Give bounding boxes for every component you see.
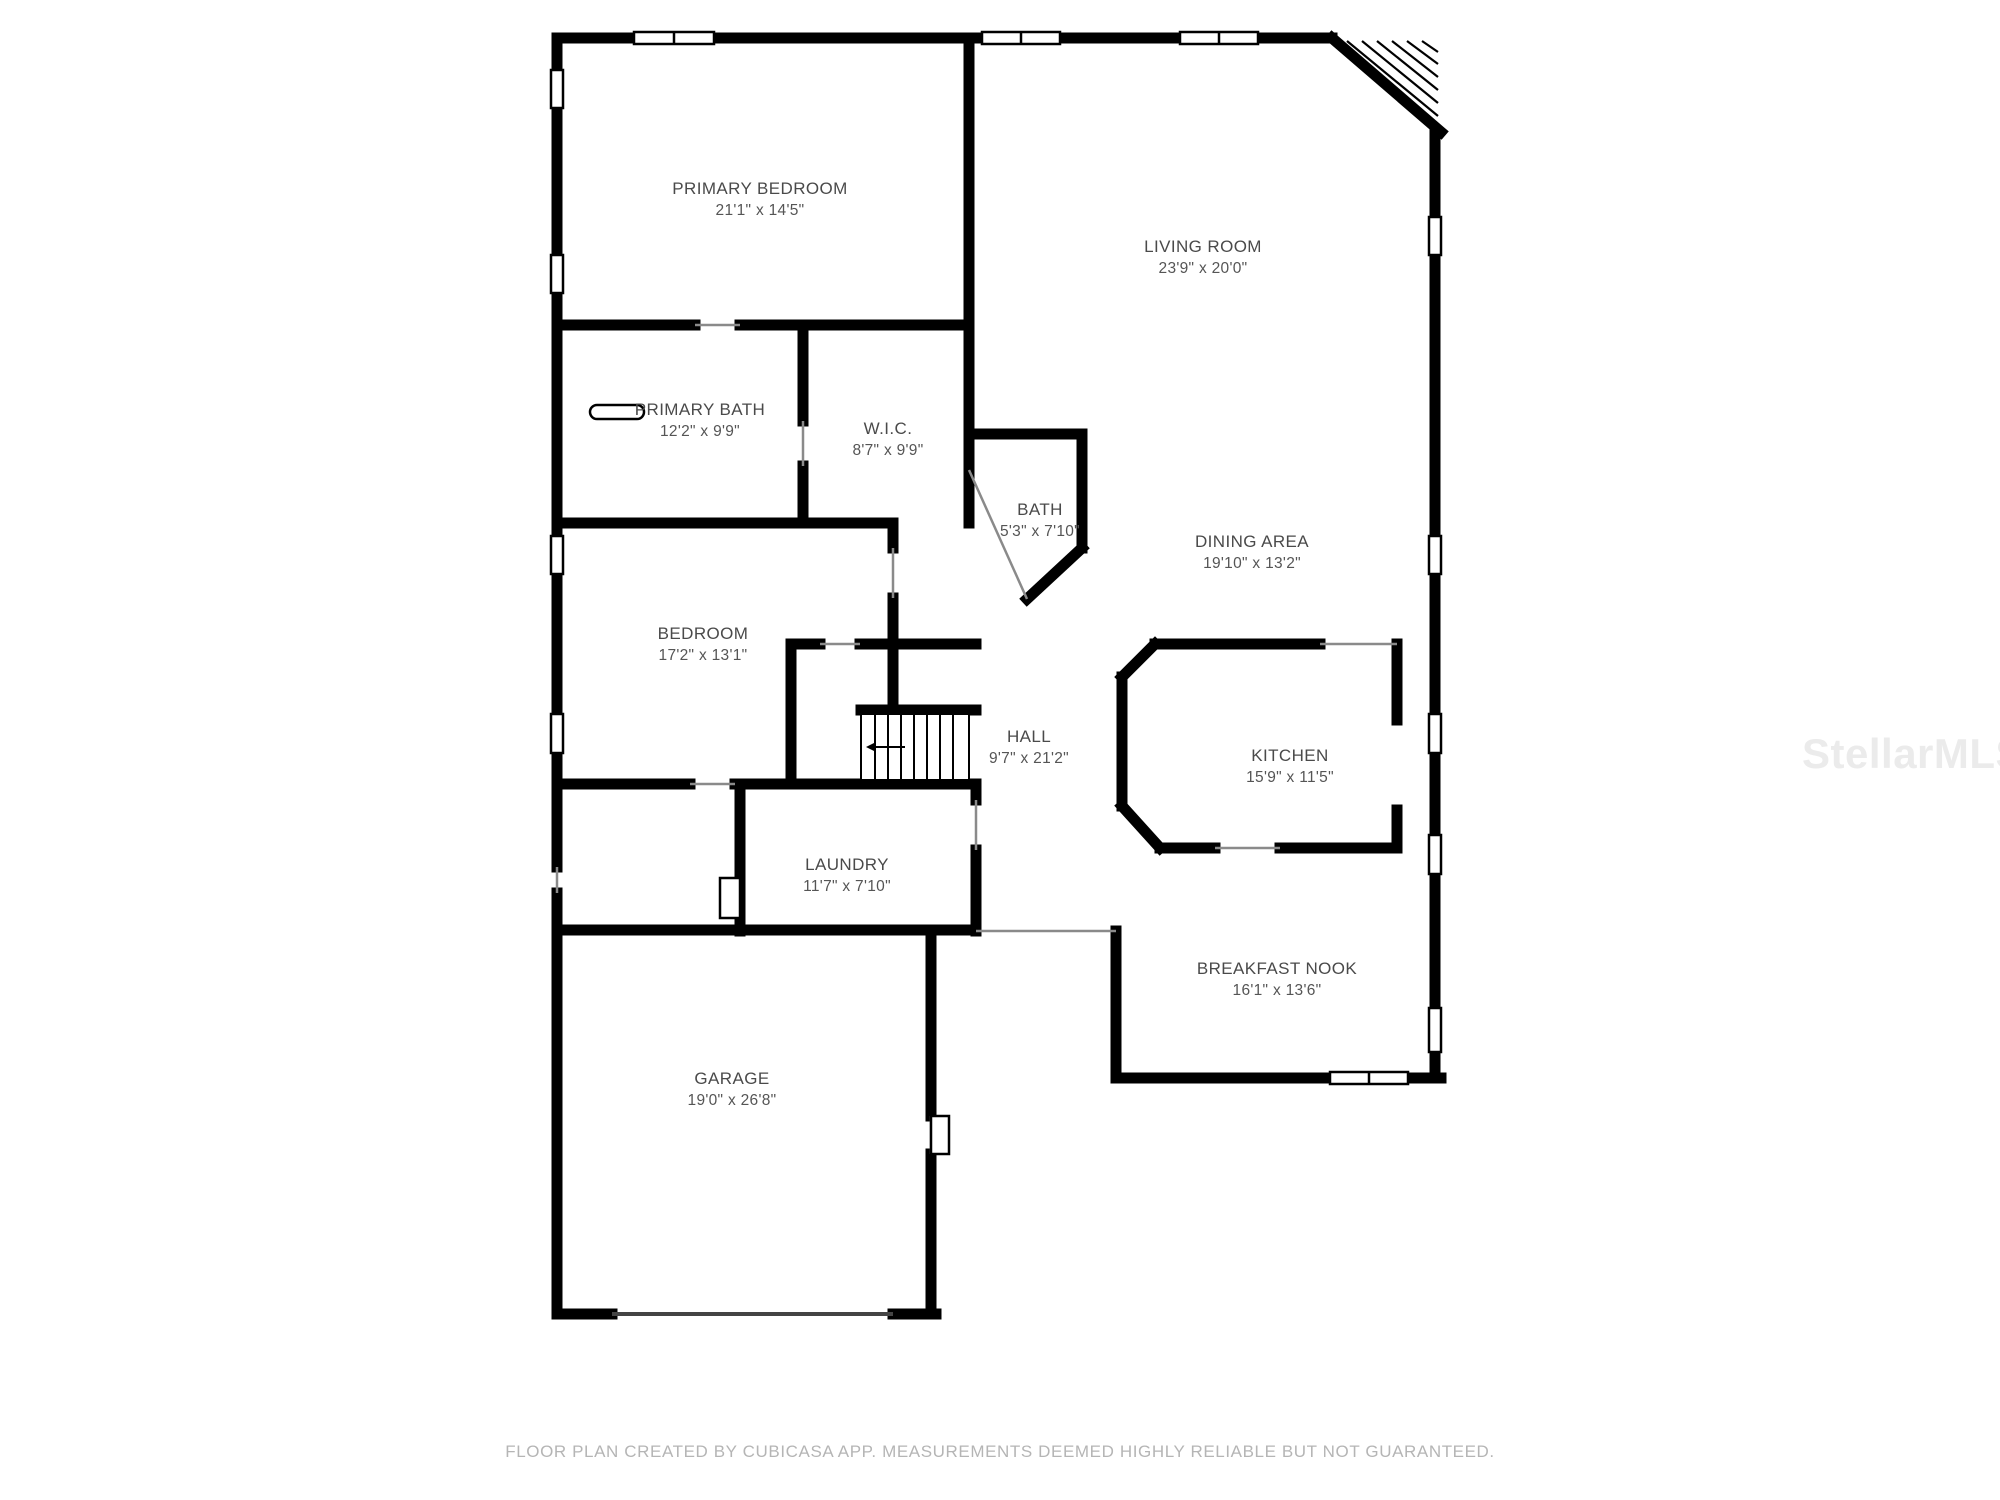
laundry-door (720, 878, 740, 918)
door-openings (557, 325, 1397, 1154)
garage-side-door (931, 1116, 949, 1154)
stellar-mls-watermark: StellarMLS (1802, 730, 2000, 778)
exterior-walls (557, 38, 1441, 1314)
primary-bath-sill (590, 405, 644, 419)
interior-walls (557, 38, 1397, 931)
stairs (861, 714, 969, 780)
corner-hatch (1347, 41, 1438, 116)
footer-disclaimer: FLOOR PLAN CREATED BY CUBICASA APP. MEAS… (505, 1442, 1495, 1462)
floor-plan-page: { "page": { "background": "#ffffff" }, "… (0, 0, 2000, 1500)
floor-plan-drawing (0, 0, 2000, 1500)
